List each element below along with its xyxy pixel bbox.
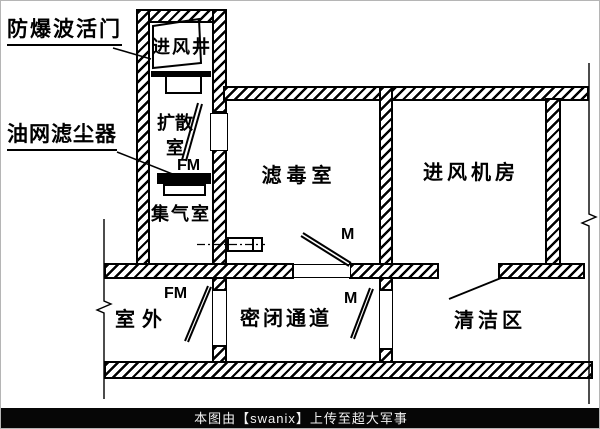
door-opening-filter-room <box>293 264 351 278</box>
wall-fanroom-right <box>545 98 561 265</box>
room-label-sealed-passage: 密闭通道 <box>226 308 346 331</box>
door-opening-outdoor <box>212 290 227 346</box>
watermark-text: 本图由【swanix】上传至超大军事 <box>194 411 408 426</box>
wall-corridor-top-mid <box>349 263 439 279</box>
room-label-outdoor: 室外 <box>101 309 183 332</box>
room-label-filter-room: 滤毒室 <box>249 165 349 188</box>
duct-to-filter-room <box>227 237 263 252</box>
break-line-right <box>582 63 596 404</box>
wall-passage-divider-top <box>379 277 393 291</box>
door-tag-fm-diffusion: FM <box>177 157 200 175</box>
room-label-diffusion-room: 扩散 室 <box>146 111 204 161</box>
watermark-bar: 本图由【swanix】上传至超大军事 <box>1 408 600 429</box>
wall-bottom <box>104 361 593 379</box>
door-opening-passage <box>379 290 393 349</box>
door-opening-diffusion <box>210 113 228 151</box>
door-tag-fm-outdoor: FM <box>164 285 187 303</box>
intake-shaft-transition-box <box>165 75 202 94</box>
wall-outdoor-divider-bottom <box>212 345 227 363</box>
door-tag-m-filter-room: M <box>341 226 354 244</box>
door-leaf-clean-area-icon <box>449 278 501 299</box>
wall-divider-filter-fanroom <box>379 86 393 279</box>
wall-outdoor-divider-top <box>212 277 227 291</box>
room-label-intake-shaft: 进风井 <box>148 37 216 58</box>
room-label-clean-area: 清洁区 <box>437 310 543 333</box>
room-label-gas-collection: 集气室 <box>144 204 218 225</box>
wall-passage-divider-bottom <box>379 348 393 363</box>
annotation-oil-filter: 油网滤尘器 <box>7 123 117 151</box>
collection-chamber-inlet-box <box>163 184 206 196</box>
wall-corridor-top-right <box>498 263 585 279</box>
annotation-blast-valve: 防爆波活门 <box>7 18 122 46</box>
door-tag-m-passage: M <box>344 290 357 308</box>
room-label-fan-room: 进风机房 <box>406 162 536 185</box>
wall-corridor-top-left <box>104 263 294 279</box>
wall-top <box>223 86 589 101</box>
door-leaf-fm-outdoor-icon <box>185 286 211 342</box>
duct-flange-line <box>252 239 254 250</box>
scanned-diagram-page: 防爆波活门 油网滤尘器 进风井 扩散 室 FM 集气室 滤毒室 进风机房 M F… <box>0 0 600 429</box>
